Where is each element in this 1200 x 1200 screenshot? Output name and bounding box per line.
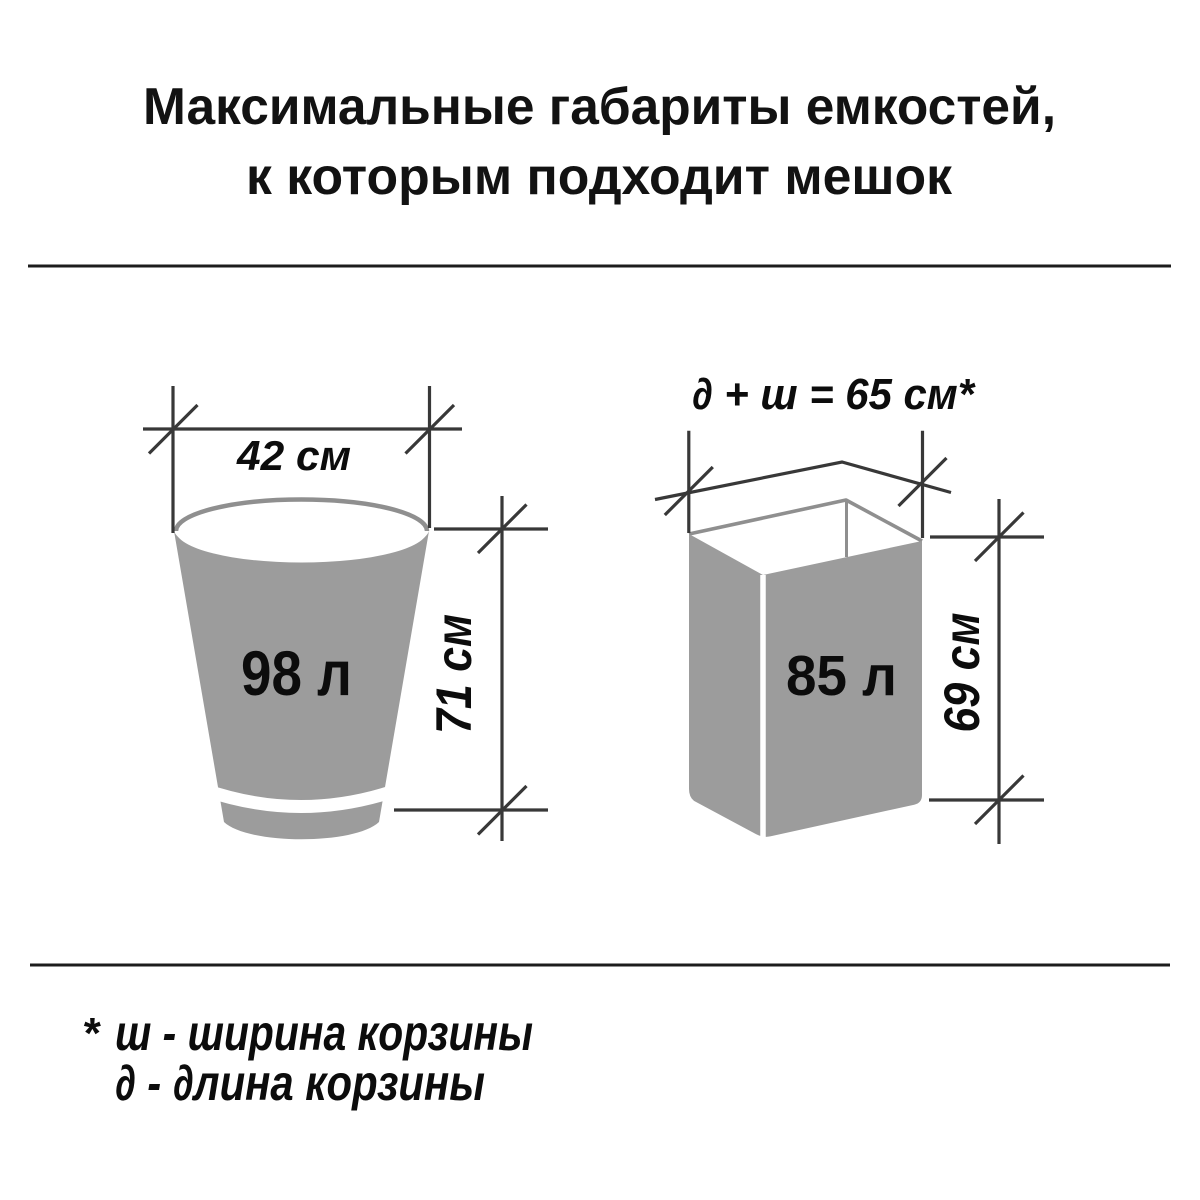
svg-text:*: *	[82, 1009, 101, 1058]
svg-text:71 см: 71 см	[426, 614, 482, 734]
svg-text:∂ + ш = 65 см*: ∂ + ш = 65 см*	[692, 370, 976, 419]
svg-text:∂ - ∂лина корзины: ∂ - ∂лина корзины	[115, 1055, 485, 1111]
svg-text:Максимальные габариты емкостей: Максимальные габариты емкостей,	[143, 78, 1056, 136]
svg-text:69 см: 69 см	[934, 612, 990, 732]
svg-text:42 см: 42 см	[236, 432, 351, 479]
svg-text:98 л: 98 л	[241, 639, 352, 709]
svg-text:к которым подходит мешок: к которым подходит мешок	[246, 148, 953, 206]
svg-text:ш - ширина корзины: ш - ширина корзины	[115, 1005, 533, 1061]
svg-text:85 л: 85 л	[786, 644, 897, 708]
